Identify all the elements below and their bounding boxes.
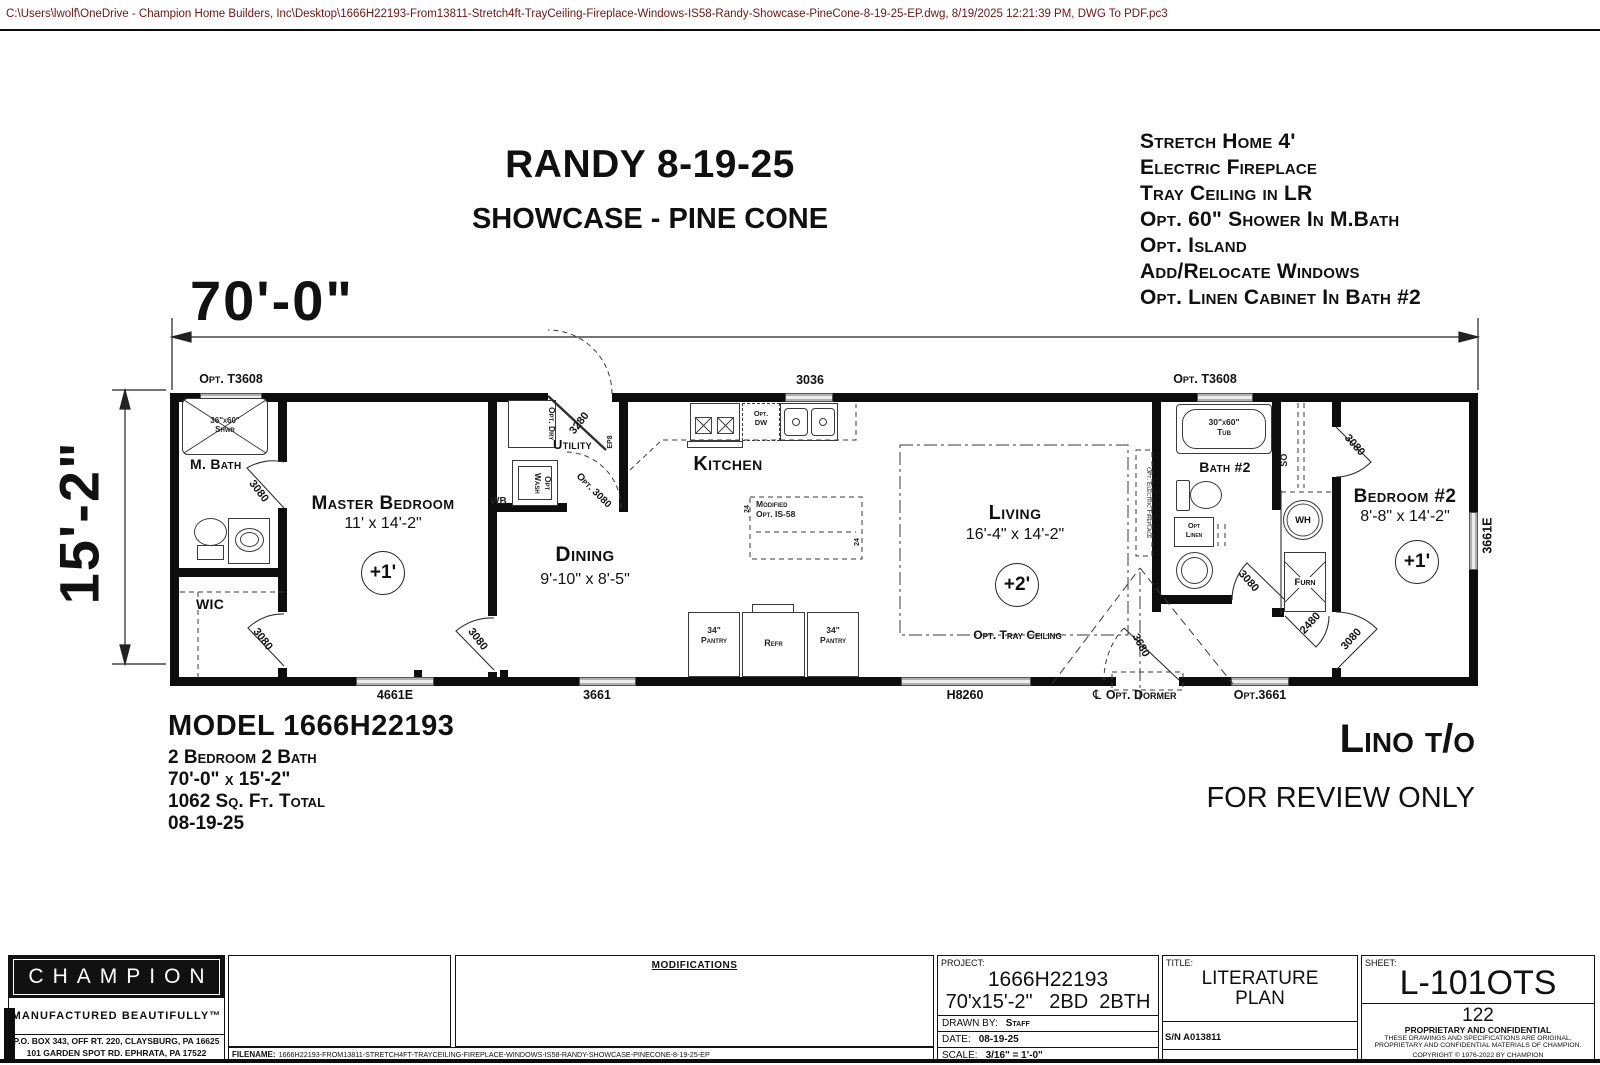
water-heater-label: WH <box>1295 515 1311 526</box>
island-label: ModifiedOpt. IS-58 <box>756 500 836 520</box>
title-panel: TITLE: LITERATURE PLAN S/N A013811 <box>1162 955 1358 1062</box>
date-value: 08-19-25 <box>979 1034 1019 1045</box>
wall-segment <box>170 568 287 577</box>
bath2-sink-inner <box>1181 557 1208 584</box>
furnace: Furn <box>1284 552 1326 612</box>
centerline-icon: ℄ <box>1093 687 1101 702</box>
champion-logo-text: CHAMPION <box>13 959 220 995</box>
overall-width-dim: 70'-0" <box>190 272 354 331</box>
note-item: Opt. 60" Shower In M.Bath <box>1140 207 1421 233</box>
water-heater: WH <box>1283 500 1323 540</box>
divider <box>1362 1003 1594 1004</box>
range-handle <box>687 441 743 448</box>
serial-number: S/N A013811 <box>1165 1032 1221 1043</box>
floor-note-bedroom2: +1' <box>1395 540 1439 584</box>
sheet-rev: 122 <box>1362 1005 1594 1027</box>
dormer-label-text: Opt. Dormer <box>1106 688 1177 702</box>
island-depth-mark: 24 <box>744 499 752 519</box>
lino-stamp: Lino t/o <box>1175 718 1475 760</box>
tub-label: 30"x60"Tub <box>1176 418 1272 438</box>
door-label-3080: 3080 <box>459 619 495 661</box>
window-3661 <box>579 677 636 686</box>
toilet-bowl <box>1190 481 1222 509</box>
room-label-mbath: M. Bath <box>190 457 241 472</box>
sink-drain <box>819 418 827 426</box>
title-line2: SHOWCASE - PINE CONE <box>430 203 870 236</box>
note-item: Add/Relocate Windows <box>1140 259 1421 285</box>
toilet-tank <box>197 545 224 560</box>
wall-segment <box>619 393 628 512</box>
title-line1: RANDY 8-19-25 <box>430 143 870 187</box>
wall-segment <box>170 393 179 686</box>
sheet-corner-mark <box>4 1008 15 1062</box>
washer-label: Opt Wash <box>518 466 552 500</box>
dormer-label: ℄ Opt. Dormer <box>1093 686 1177 704</box>
window-label-t3608-right: Opt. T3608 <box>1145 373 1265 386</box>
door-label-3080: 3080 <box>1229 562 1267 602</box>
sheet-title-line1: LITERATURE <box>1163 968 1357 990</box>
door-label-3080: 3080 <box>1333 620 1371 660</box>
window-opt3661 <box>1231 677 1289 686</box>
room-size-bedroom2: 8'-8" x 14'-2" <box>1325 509 1485 526</box>
wall-segment <box>1152 393 1161 612</box>
drawn-by-label: DRAWN BY: <box>942 1018 998 1029</box>
proprietary-title: PROPRIETARY AND CONFIDENTIAL <box>1362 1025 1594 1035</box>
note-item: Opt. Linen Cabinet In Bath #2 <box>1140 285 1421 311</box>
wall-segment <box>278 577 287 612</box>
divider <box>1163 1049 1357 1050</box>
window-label-h8260: H8260 <box>925 689 1005 702</box>
room-label-bath2: Bath #2 <box>1185 460 1265 475</box>
note-item: Opt. Island <box>1140 233 1421 259</box>
wall-segment <box>1332 393 1341 427</box>
room-size-living: 16'-4" x 14'-2" <box>935 527 1095 544</box>
model-number: MODEL 1666H22193 <box>168 710 454 743</box>
drawn-by-value: Staff <box>1006 1018 1030 1029</box>
model-size: 70'-0" x 15'-2" <box>168 769 454 791</box>
note-item: Stretch Home 4' <box>1140 129 1421 155</box>
wall-segment <box>1332 668 1341 686</box>
window-t3608-right <box>1197 393 1253 402</box>
room-size-master-bedroom: 11' x 14'-2" <box>283 516 483 533</box>
floor-note-living: +2' <box>995 563 1039 607</box>
wall-segment <box>488 672 497 686</box>
drawing-sheet: C:\Users\lwolf\OneDrive - Champion Home … <box>0 0 1600 1065</box>
fireplace-label: Opt. Electric Fireplace <box>1136 450 1152 556</box>
pantry-label: 34"Pantry <box>688 626 740 646</box>
window-4661e <box>356 677 434 686</box>
sheet-top-rule <box>0 29 1600 31</box>
note-item: Tray Ceiling in LR <box>1140 181 1421 207</box>
door-label-opt-3080: Opt. 3080 <box>563 461 623 521</box>
model-beds: 2 Bedroom 2 Bath <box>168 747 454 769</box>
sink-drain <box>792 418 800 426</box>
room-label-kitchen: Kitchen <box>648 454 808 475</box>
titleblock-empty-panel <box>228 955 451 1047</box>
furnace-label: Furn <box>1294 577 1317 588</box>
room-size-dining: 9'-10" x 8'-5" <box>505 572 665 589</box>
modifications-header: MODIFICATIONS <box>456 960 933 971</box>
toilet-tank <box>1176 480 1190 511</box>
plot-stamp: C:\Users\lwolf\OneDrive - Champion Home … <box>6 8 1168 20</box>
sheet-number: L-101OTS <box>1362 964 1594 1003</box>
champion-address: P.O. BOX 343, OFF RT. 220, CLAYSBURG, PA… <box>9 1034 224 1060</box>
door-label-3080: 3080 <box>240 471 276 513</box>
date-label: DATE: <box>942 1034 971 1045</box>
champion-logo-block: CHAMPION MANUFACTURED BEAUTIFULLY™ P.O. … <box>8 955 225 1062</box>
model-date: 08-19-25 <box>168 813 454 835</box>
address-line1: P.O. BOX 343, OFF RT. 220, CLAYSBURG, PA… <box>9 1036 224 1048</box>
champion-tagline: MANUFACTURED BEAUTIFULLY™ <box>9 998 224 1034</box>
dormer-opening <box>1116 677 1179 686</box>
dishwasher-label: Opt.DW <box>742 410 780 427</box>
project-number: 1666H22193 <box>938 968 1158 992</box>
room-label-living: Living <box>935 503 1095 524</box>
overall-height-dim: 15'-2" <box>51 454 110 604</box>
vanity-sink-inner <box>240 532 259 547</box>
drawn-by-row: DRAWN BY: Staff <box>938 1015 1158 1031</box>
refrigerator-waterline <box>752 604 794 613</box>
electrical-panel-label: EP8 <box>607 427 615 457</box>
wall-segment <box>278 668 287 686</box>
champion-logo: CHAMPION <box>9 956 224 998</box>
shower-label: 36"x60"Shwr <box>182 416 268 434</box>
option-notes: Stretch Home 4' Electric Fireplace Tray … <box>1140 129 1421 311</box>
door-label-3080: 3080 <box>1335 426 1373 466</box>
address-line2: 101 GARDEN SPOT RD. EPHRATA, PA 17522 <box>9 1048 224 1060</box>
sheet-bottom-rule <box>0 1059 1600 1063</box>
floor-note-master: +1' <box>361 551 405 595</box>
room-label-master-bedroom: Master Bedroom <box>283 494 483 514</box>
door-label-3680: 3680 <box>1125 624 1156 668</box>
room-label-wic: WIC <box>196 597 224 612</box>
review-stamp: FOR REVIEW ONLY <box>1175 783 1475 813</box>
drawing-title: RANDY 8-19-25 SHOWCASE - PINE CONE <box>430 143 870 236</box>
sheet-panel: SHEET: L-101OTS 122 PROPRIETARY AND CONF… <box>1361 955 1595 1062</box>
shelf-only-label: SO <box>1279 448 1289 472</box>
entry-door-opening <box>548 393 612 402</box>
wall-box-label: WB <box>490 496 507 508</box>
door-stop-block <box>500 670 508 678</box>
window-label-opt3661: Opt.3661 <box>1215 689 1305 702</box>
range-burner <box>717 417 734 434</box>
filename-value: 1666H22193-FROM13811-STRETCH4FT-TRAYCEIL… <box>279 1050 710 1059</box>
project-panel: PROJECT: 1666H22193 70'x15'-2" 2BD 2BTH … <box>937 955 1159 1062</box>
pantry-label: 34"Pantry <box>807 626 859 646</box>
copyright-line: COPYRIGHT © 1976-2022 BY CHAMPION <box>1362 1052 1594 1059</box>
wall-segment <box>1272 608 1284 617</box>
divider <box>1163 1021 1357 1022</box>
dryer-label: Opt. Dry <box>508 400 556 448</box>
refrigerator-label: Refr <box>742 638 805 648</box>
modifications-panel: MODIFICATIONS <box>455 955 934 1047</box>
range-burner <box>695 417 712 434</box>
project-desc: 70'x15'-2" 2BD 2BTH <box>938 991 1158 1014</box>
wall-segment <box>1152 595 1232 604</box>
tray-ceiling-label: Opt. Tray Ceiling <box>940 629 1095 642</box>
window-label-3036: 3036 <box>760 374 860 387</box>
date-row: DATE: 08-19-25 <box>938 1031 1158 1047</box>
room-label-utility: Utility <box>553 438 592 452</box>
linen-label: OptLinen <box>1174 522 1214 539</box>
window-label-t3608-left: Opt. T3608 <box>171 373 291 386</box>
model-info: MODEL 1666H22193 2 Bedroom 2 Bath 70'-0"… <box>168 710 454 835</box>
project-label: PROJECT: <box>941 958 985 968</box>
title-label: TITLE: <box>1166 958 1193 968</box>
door-label-3080: 3080 <box>244 619 280 661</box>
window-label-3661: 3661 <box>557 689 637 702</box>
proprietary-line1: THESE DRAWINGS AND SPECIFICATIONS ARE OR… <box>1362 1035 1594 1042</box>
sheet-title-line2: PLAN <box>1163 988 1357 1010</box>
room-label-bedroom2: Bedroom #2 <box>1325 487 1485 507</box>
proprietary-line2: PROPRIETARY AND CONFIDENTIAL MATERIALS O… <box>1362 1042 1594 1049</box>
window-3036 <box>785 393 833 402</box>
toilet-bowl <box>194 518 227 546</box>
model-sqft: 1062 Sq. Ft. Total <box>168 791 454 813</box>
filename-label: FILENAME: <box>232 1050 276 1059</box>
wall-segment <box>278 393 287 462</box>
room-label-dining: Dining <box>505 544 665 566</box>
window-h8260 <box>901 677 1031 686</box>
window-label-4661e: 4661E <box>355 689 435 702</box>
note-item: Electric Fireplace <box>1140 155 1421 181</box>
island-depth-mark: 24 <box>854 532 862 552</box>
